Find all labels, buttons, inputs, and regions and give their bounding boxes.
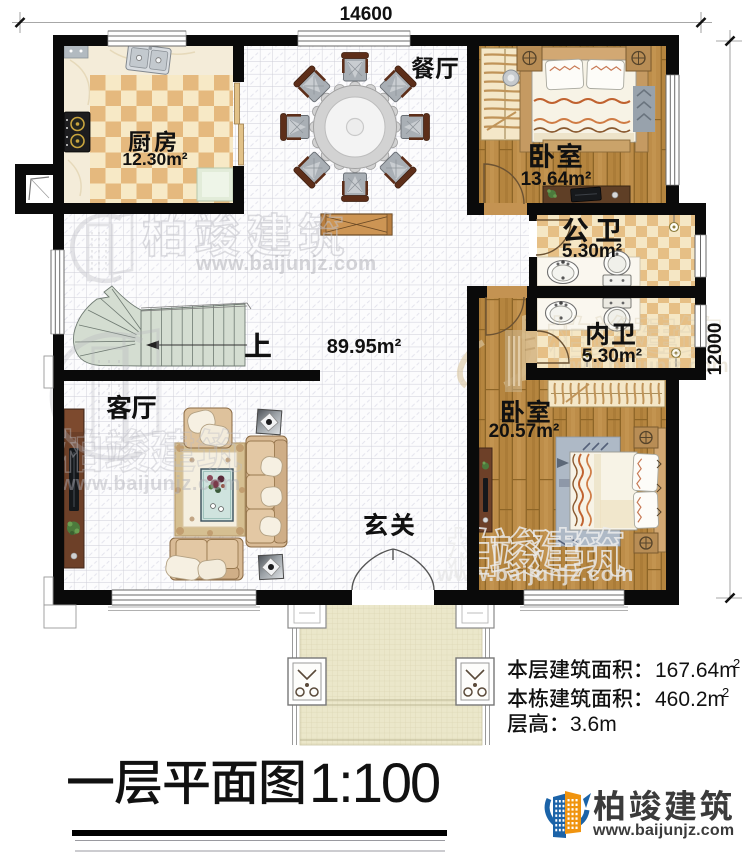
- svg-text:89.95m²: 89.95m²: [327, 336, 402, 358]
- svg-text:www.baijunjz.com: www.baijunjz.com: [195, 253, 377, 275]
- svg-text:14600: 14600: [340, 4, 393, 25]
- svg-text:13.64m²: 13.64m²: [521, 169, 592, 190]
- svg-text:20.57m²: 20.57m²: [489, 421, 560, 442]
- svg-text:2: 2: [733, 656, 740, 671]
- svg-text:www.baijunjz.com: www.baijunjz.com: [592, 822, 734, 839]
- svg-text:2: 2: [722, 685, 729, 700]
- svg-text:1:100: 1:100: [309, 751, 439, 814]
- svg-text:5.30m²: 5.30m²: [562, 241, 622, 262]
- svg-text:167.64m: 167.64m: [655, 659, 737, 682]
- svg-text:12000: 12000: [705, 323, 726, 376]
- svg-text:www.baijunjz.com: www.baijunjz.com: [59, 473, 241, 495]
- svg-text:460.2m: 460.2m: [655, 688, 725, 711]
- svg-text:www.baijunjz.com: www.baijunjz.com: [436, 563, 634, 586]
- svg-text:5.30m²: 5.30m²: [582, 346, 642, 367]
- svg-text:3.6m: 3.6m: [570, 713, 617, 736]
- svg-text:12.30m²: 12.30m²: [122, 149, 187, 169]
